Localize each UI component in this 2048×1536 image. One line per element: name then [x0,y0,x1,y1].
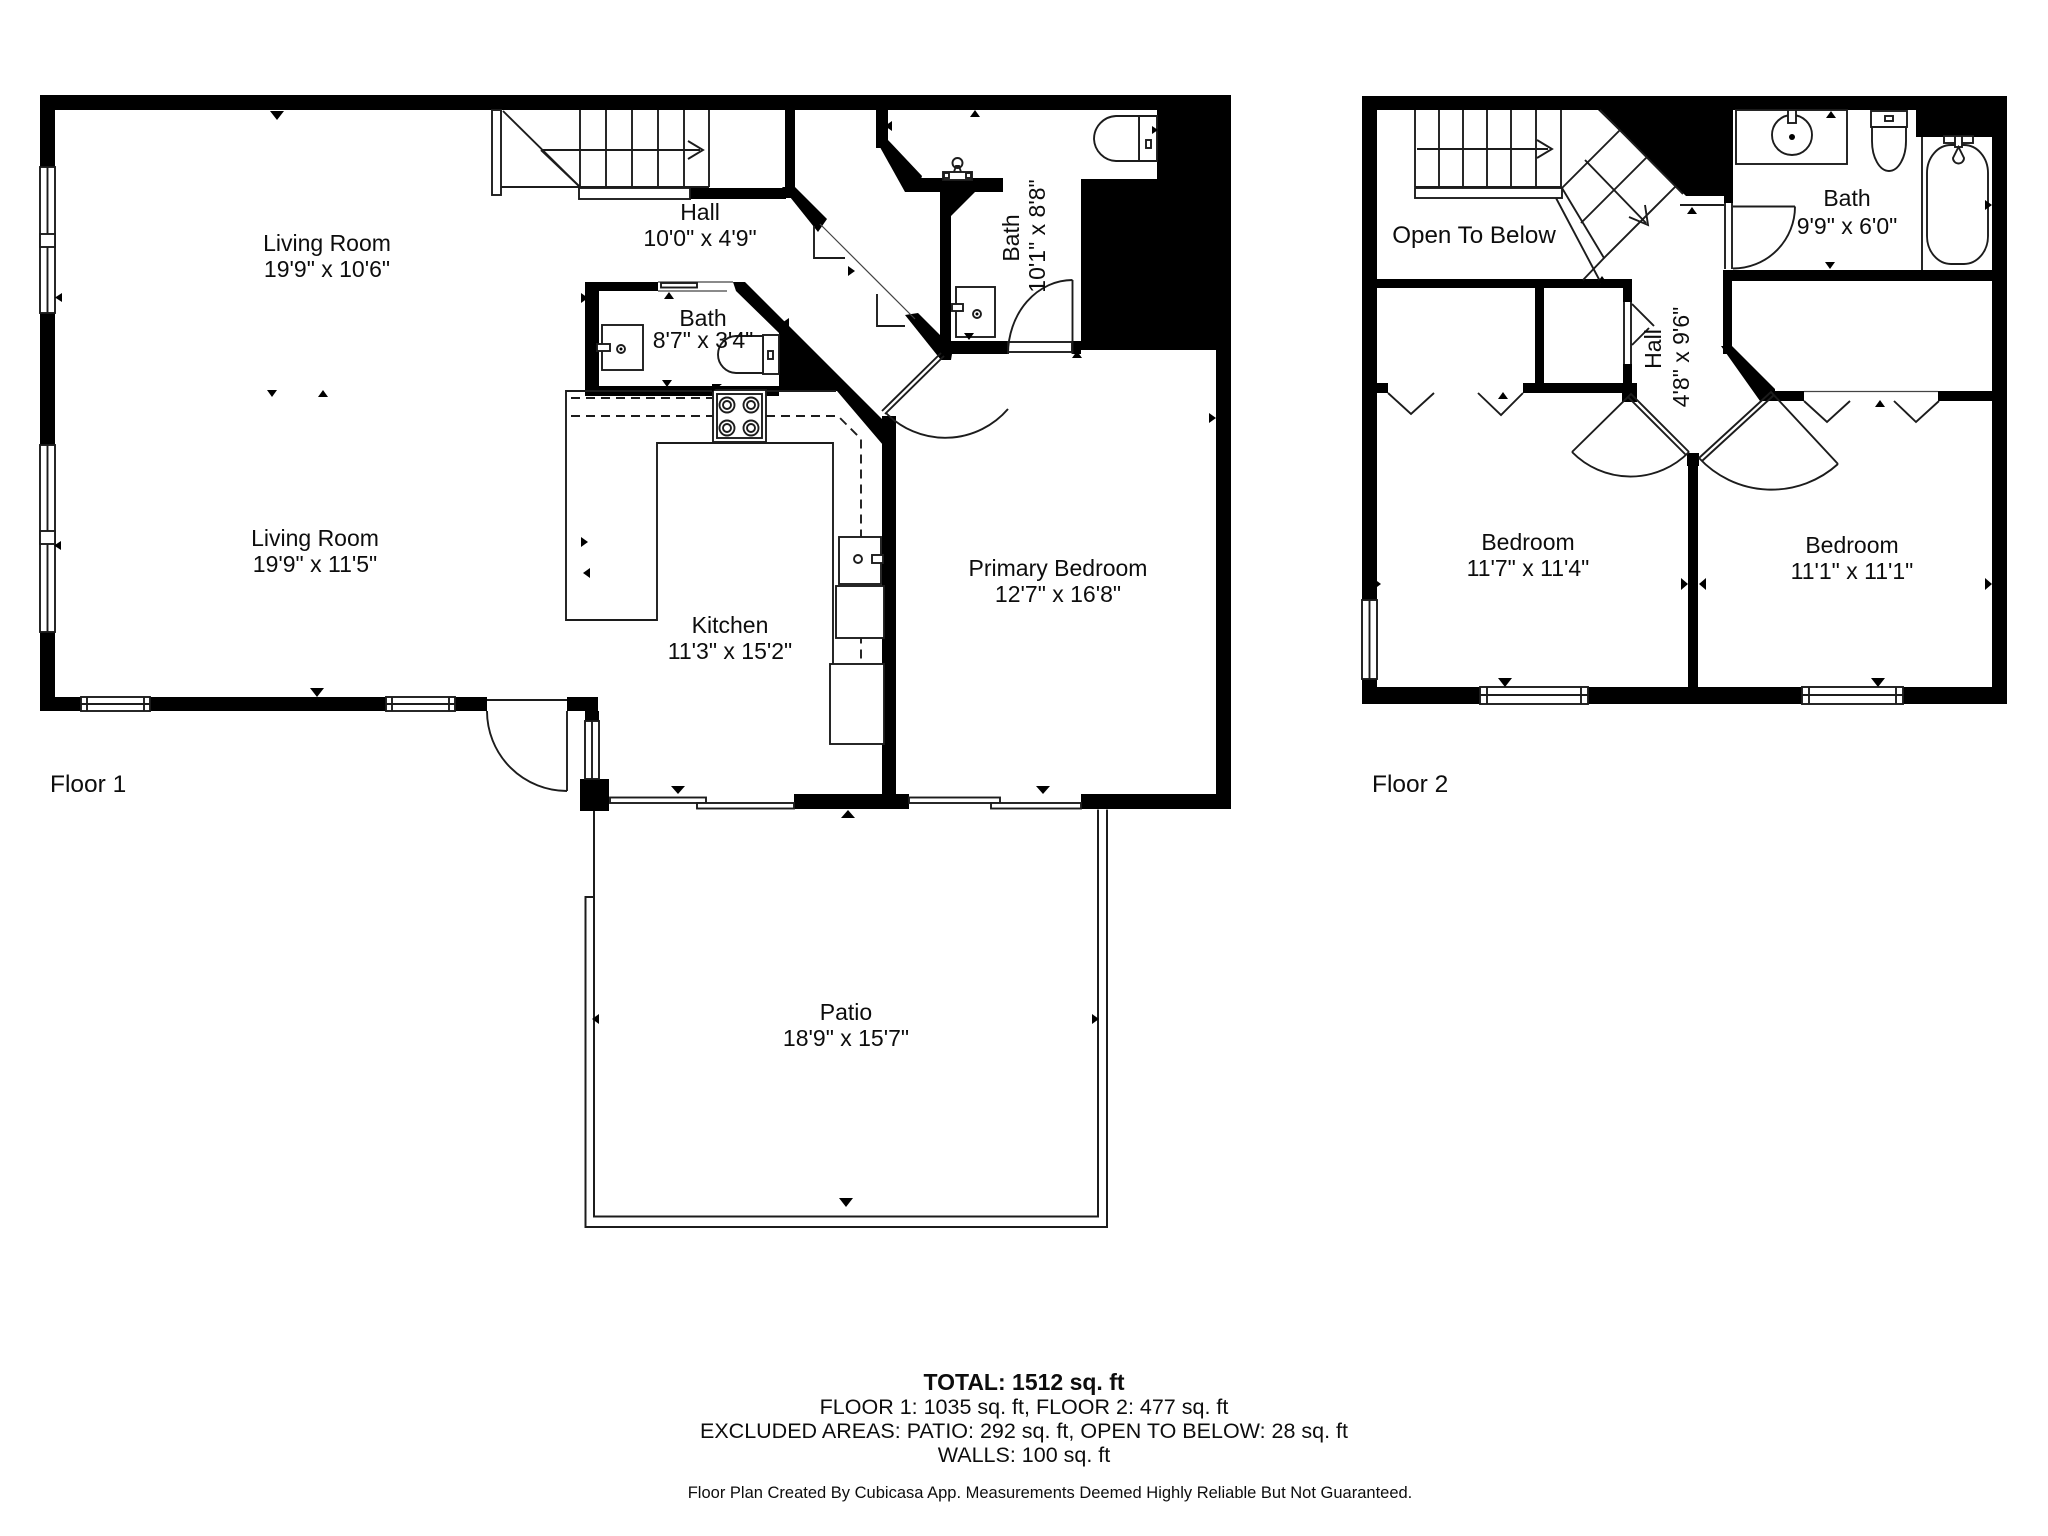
svg-text:WALLS: 100 sq. ft: WALLS: 100 sq. ft [938,1443,1111,1467]
svg-text:18'9" x 15'7": 18'9" x 15'7" [783,1025,909,1051]
svg-text:Floor 2: Floor 2 [1372,771,1448,798]
svg-text:TOTAL: 1512 sq. ft: TOTAL: 1512 sq. ft [923,1369,1124,1395]
svg-text:11'7" x 11'4": 11'7" x 11'4" [1467,555,1590,581]
svg-text:Floor Plan Created By Cubicasa: Floor Plan Created By Cubicasa App. Meas… [688,1484,1413,1502]
svg-text:Hall: Hall [1640,329,1666,369]
svg-text:EXCLUDED AREAS: PATIO: 292 sq.: EXCLUDED AREAS: PATIO: 292 sq. ft, OPEN … [700,1419,1348,1443]
svg-text:Floor 1: Floor 1 [50,771,126,798]
svg-text:Open To Below: Open To Below [1392,222,1556,249]
svg-text:Bath: Bath [998,214,1024,261]
svg-text:19'9" x 10'6": 19'9" x 10'6" [264,256,390,282]
svg-text:8'7" x 3'4": 8'7" x 3'4" [653,327,754,353]
svg-text:Bath: Bath [1823,185,1870,211]
svg-text:Primary Bedroom: Primary Bedroom [969,555,1148,581]
svg-text:FLOOR 1: 1035 sq. ft, FLOOR 2:: FLOOR 1: 1035 sq. ft, FLOOR 2: 477 sq. f… [820,1395,1229,1419]
svg-text:Bedroom: Bedroom [1805,532,1898,558]
svg-text:10'1" x 8'8": 10'1" x 8'8" [1024,179,1050,292]
svg-text:Kitchen: Kitchen [692,612,769,638]
svg-text:9'9" x 6'0": 9'9" x 6'0" [1797,213,1898,239]
svg-text:11'1" x 11'1": 11'1" x 11'1" [1791,558,1914,584]
svg-text:Hall: Hall [680,199,720,225]
svg-text:Living Room: Living Room [263,230,391,256]
svg-text:12'7" x 16'8": 12'7" x 16'8" [995,581,1121,607]
svg-text:Bedroom: Bedroom [1481,529,1574,555]
svg-text:Patio: Patio [820,999,872,1025]
svg-text:4'8" x 9'6": 4'8" x 9'6" [1668,307,1694,408]
svg-text:11'3" x 15'2": 11'3" x 15'2" [668,638,792,664]
svg-text:Living Room: Living Room [251,525,379,551]
svg-text:19'9" x 11'5": 19'9" x 11'5" [253,551,377,577]
svg-text:10'0" x 4'9": 10'0" x 4'9" [643,225,756,251]
